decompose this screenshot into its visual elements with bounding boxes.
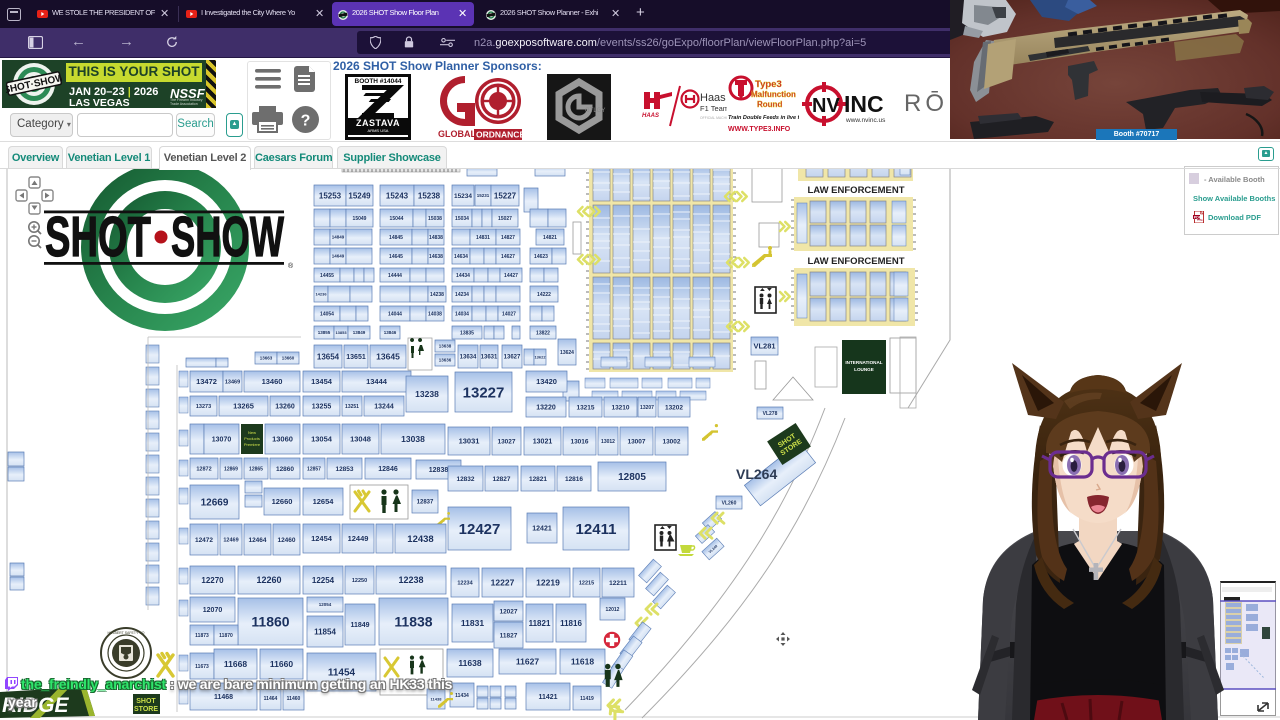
svg-text:WWW.TYPE3.INFO: WWW.TYPE3.INFO [728, 126, 791, 133]
svg-text:12070: 12070 [203, 607, 223, 614]
svg-text:13645: 13645 [376, 352, 400, 362]
svg-text:13021: 13021 [533, 439, 553, 446]
svg-text:12846: 12846 [378, 466, 398, 473]
svg-text:13273: 13273 [196, 404, 211, 410]
svg-text:12469: 12469 [223, 538, 238, 544]
svg-text:13012: 13012 [601, 439, 615, 445]
svg-text:13444: 13444 [366, 377, 388, 386]
svg-text:12270: 12270 [201, 576, 224, 585]
svg-text:14027: 14027 [502, 311, 516, 317]
svg-text:14638: 14638 [429, 254, 443, 260]
svg-text:LOUNGE: LOUNGE [854, 367, 874, 372]
svg-text:SHOT: SHOT [136, 698, 156, 705]
svg-text:Malfunction: Malfunction [751, 90, 796, 99]
svg-text:13627: 13627 [504, 355, 521, 361]
svg-text:11627: 11627 [516, 657, 539, 667]
svg-text:14845: 14845 [389, 235, 403, 241]
svg-text:14234: 14234 [455, 292, 469, 298]
svg-text:VL264: VL264 [736, 466, 777, 482]
svg-text:PDF: PDF [1194, 215, 1202, 219]
svg-text:14222: 14222 [537, 292, 551, 298]
svg-text:13853: 13853 [335, 330, 347, 335]
svg-text:11860: 11860 [251, 614, 289, 630]
svg-text:13846: 13846 [384, 330, 397, 335]
svg-text:12838: 12838 [429, 467, 449, 474]
svg-text:13849: 13849 [353, 330, 366, 335]
svg-text:11854: 11854 [314, 627, 336, 636]
svg-text:13038: 13038 [401, 434, 425, 444]
svg-text:12449: 12449 [348, 534, 369, 543]
svg-text:13260: 13260 [275, 404, 295, 411]
svg-text:13651: 13651 [346, 354, 366, 361]
svg-text:13624: 13624 [560, 350, 574, 356]
svg-text:11464: 11464 [264, 696, 278, 702]
svg-text:15253: 15253 [319, 191, 342, 200]
svg-text:11419: 11419 [580, 696, 594, 702]
svg-text:LAW ENFORCEMENT: LAW ENFORCEMENT [807, 185, 904, 196]
svg-text:12821: 12821 [529, 476, 547, 483]
svg-text:12411: 12411 [576, 521, 617, 538]
svg-text:12869: 12869 [224, 466, 238, 472]
svg-text:12438: 12438 [407, 534, 433, 545]
svg-text:13070: 13070 [212, 437, 232, 444]
svg-text:13207: 13207 [640, 405, 654, 411]
svg-text:11673: 11673 [195, 664, 209, 670]
svg-text:13215: 13215 [576, 404, 594, 411]
svg-text:11873: 11873 [195, 633, 209, 639]
svg-text:13638: 13638 [439, 344, 452, 349]
svg-text:12454: 12454 [311, 534, 333, 543]
svg-text:15049: 15049 [353, 216, 367, 222]
svg-text:11821: 11821 [529, 619, 551, 628]
svg-text:13060: 13060 [272, 435, 293, 444]
svg-text:INTERNATIONAL: INTERNATIONAL [845, 360, 882, 365]
svg-text:13220: 13220 [536, 405, 556, 412]
svg-text:14034: 14034 [455, 311, 469, 317]
svg-text:12660: 12660 [272, 497, 293, 506]
svg-text:14821: 14821 [543, 235, 557, 241]
svg-text:Premiere: Premiere [244, 442, 261, 447]
svg-text:12219: 12219 [536, 578, 560, 588]
svg-text:12421: 12421 [532, 526, 552, 533]
svg-text:11660: 11660 [270, 659, 293, 669]
svg-text:14649: 14649 [332, 254, 345, 259]
svg-text:12260: 12260 [256, 575, 281, 585]
svg-text:13460: 13460 [262, 377, 283, 386]
svg-text:12860: 12860 [276, 466, 294, 473]
svg-text:13007: 13007 [627, 438, 645, 445]
svg-text:VL281: VL281 [753, 342, 775, 351]
svg-text:11870: 11870 [219, 633, 233, 639]
svg-text:14434: 14434 [456, 273, 470, 279]
svg-text:12865: 12865 [249, 466, 263, 472]
svg-text:15227: 15227 [494, 191, 517, 200]
svg-text:14634: 14634 [454, 254, 468, 260]
svg-text:11434: 11434 [455, 693, 469, 699]
svg-text:11460: 11460 [287, 696, 301, 702]
svg-text:11638: 11638 [458, 658, 481, 668]
svg-text:12012: 12012 [606, 607, 620, 613]
svg-text:Type3: Type3 [755, 79, 782, 90]
svg-text:14623: 14623 [534, 254, 548, 260]
svg-text:12027: 12027 [499, 608, 517, 615]
svg-text:14038: 14038 [428, 311, 442, 317]
svg-text:VL260: VL260 [722, 500, 737, 506]
svg-text:13631: 13631 [481, 355, 498, 361]
svg-text:13469: 13469 [225, 380, 240, 386]
svg-text:12464: 12464 [248, 537, 266, 544]
svg-text:13654: 13654 [317, 352, 340, 361]
svg-text:13255: 13255 [312, 404, 332, 411]
svg-text:11468: 11468 [214, 694, 233, 701]
svg-text:13202: 13202 [665, 404, 683, 411]
svg-text:12827: 12827 [492, 476, 510, 483]
svg-text:13016: 13016 [570, 438, 588, 445]
svg-text:?: ? [301, 113, 311, 130]
svg-text:14827: 14827 [501, 235, 515, 241]
svg-text:15231: 15231 [477, 193, 490, 198]
svg-text:13227: 13227 [463, 384, 505, 401]
svg-text:12669: 12669 [201, 498, 229, 509]
svg-text:13244: 13244 [374, 404, 394, 411]
svg-text:12654: 12654 [313, 497, 335, 506]
svg-text:®: ® [288, 262, 294, 270]
svg-text:11668: 11668 [224, 659, 247, 669]
svg-text:STORE: STORE [134, 706, 158, 713]
svg-text:14849: 14849 [332, 235, 345, 240]
svg-text:HULBERT SAFETY CO: HULBERT SAFETY CO [108, 631, 145, 635]
svg-text:15243: 15243 [386, 191, 409, 200]
svg-text:14427: 14427 [504, 273, 518, 279]
svg-text:GTLGY: GTLGY [585, 108, 605, 114]
svg-text:12872: 12872 [196, 467, 211, 473]
svg-text:11831: 11831 [461, 618, 484, 628]
svg-text:SHOW: SHOW [171, 205, 284, 269]
svg-text:15034: 15034 [455, 216, 469, 222]
svg-text:12234: 12234 [457, 581, 473, 587]
svg-text:14455: 14455 [320, 273, 334, 279]
svg-text:14831: 14831 [476, 235, 490, 241]
svg-text:12805: 12805 [618, 472, 646, 483]
svg-text:14627: 14627 [501, 254, 515, 260]
svg-text:SHOT: SHOT [45, 205, 151, 269]
svg-text:13002: 13002 [662, 438, 680, 445]
svg-text:12054: 12054 [319, 602, 332, 607]
svg-text:www.nvinc.us: www.nvinc.us [845, 117, 886, 124]
svg-text:LAW ENFORCEMENT: LAW ENFORCEMENT [807, 256, 904, 267]
svg-text:12250: 12250 [352, 578, 367, 584]
svg-text:13472: 13472 [196, 377, 217, 386]
svg-text:14044: 14044 [388, 311, 402, 317]
svg-text:12816: 12816 [565, 476, 583, 483]
svg-text:11618: 11618 [571, 657, 594, 667]
svg-text:15038: 15038 [428, 216, 442, 222]
svg-text:13054: 13054 [311, 435, 333, 444]
svg-text:13420: 13420 [536, 377, 557, 386]
svg-text:13238: 13238 [415, 389, 439, 399]
svg-text:15027: 15027 [498, 216, 512, 222]
svg-text:12211: 12211 [609, 580, 627, 587]
svg-text:Train Double Feeds in live fir: Train Double Feeds in live fire [728, 115, 799, 121]
svg-text:ORDNANCE: ORDNANCE [476, 130, 522, 140]
svg-text:VL278: VL278 [763, 411, 778, 417]
svg-text:13636: 13636 [439, 358, 452, 363]
svg-text:15044: 15044 [390, 216, 404, 222]
svg-text:14054: 14054 [320, 311, 334, 317]
svg-text:13027: 13027 [497, 438, 515, 445]
svg-text:15249: 15249 [348, 191, 371, 200]
svg-text:Haas: Haas [700, 92, 726, 104]
svg-text:Round: Round [757, 100, 782, 109]
svg-text:12460: 12460 [277, 537, 295, 544]
svg-text:11421: 11421 [538, 694, 557, 701]
svg-text:13822: 13822 [536, 330, 550, 336]
svg-text:13454: 13454 [311, 377, 333, 386]
svg-text:13251: 13251 [345, 404, 359, 410]
svg-text:11438: 11438 [431, 696, 443, 701]
svg-text:13663: 13663 [260, 356, 273, 361]
svg-text:14444: 14444 [388, 273, 402, 279]
svg-text:14645: 14645 [389, 254, 403, 260]
svg-text:13855: 13855 [318, 330, 331, 335]
svg-text:F1 Team: F1 Team [700, 104, 728, 113]
svg-text:13265: 13265 [233, 402, 254, 411]
svg-text:HAAS: HAAS [642, 113, 659, 119]
svg-text:12853: 12853 [335, 466, 353, 473]
svg-text:11827: 11827 [500, 632, 518, 639]
svg-text:11849: 11849 [350, 622, 369, 629]
svg-text:12427: 12427 [459, 521, 501, 538]
svg-text:14236: 14236 [315, 291, 327, 296]
svg-text:13660: 13660 [282, 356, 295, 361]
svg-text:11816: 11816 [560, 619, 582, 628]
svg-text:14238: 14238 [430, 292, 444, 298]
svg-text:GLOBAL: GLOBAL [438, 129, 476, 139]
svg-text:Products: Products [244, 436, 260, 441]
svg-text:13031: 13031 [459, 437, 480, 446]
svg-text:12238: 12238 [398, 575, 423, 585]
svg-text:11838: 11838 [394, 614, 432, 630]
svg-text:15238: 15238 [418, 191, 441, 200]
svg-text:14838: 14838 [429, 235, 443, 241]
svg-text:12472: 12472 [195, 537, 213, 544]
svg-text:13634: 13634 [460, 355, 477, 361]
svg-text:12215: 12215 [579, 581, 594, 587]
svg-text:OFFICIAL MACHINE TOOL: OFFICIAL MACHINE TOOL [700, 116, 728, 120]
svg-text:13048: 13048 [350, 435, 371, 444]
svg-text:12837: 12837 [417, 500, 434, 506]
svg-text:12227: 12227 [491, 578, 515, 588]
svg-text:12832: 12832 [456, 476, 474, 483]
svg-text:NV: NV [812, 95, 840, 117]
svg-text:12254: 12254 [312, 576, 335, 585]
svg-text:13835: 13835 [460, 330, 474, 336]
svg-text:15234: 15234 [454, 193, 472, 200]
svg-text:New: New [248, 430, 256, 435]
svg-text:12857: 12857 [307, 466, 321, 472]
svg-text:13622: 13622 [534, 354, 546, 359]
svg-text:13210: 13210 [611, 404, 629, 411]
svg-text:INC: INC [844, 91, 884, 117]
